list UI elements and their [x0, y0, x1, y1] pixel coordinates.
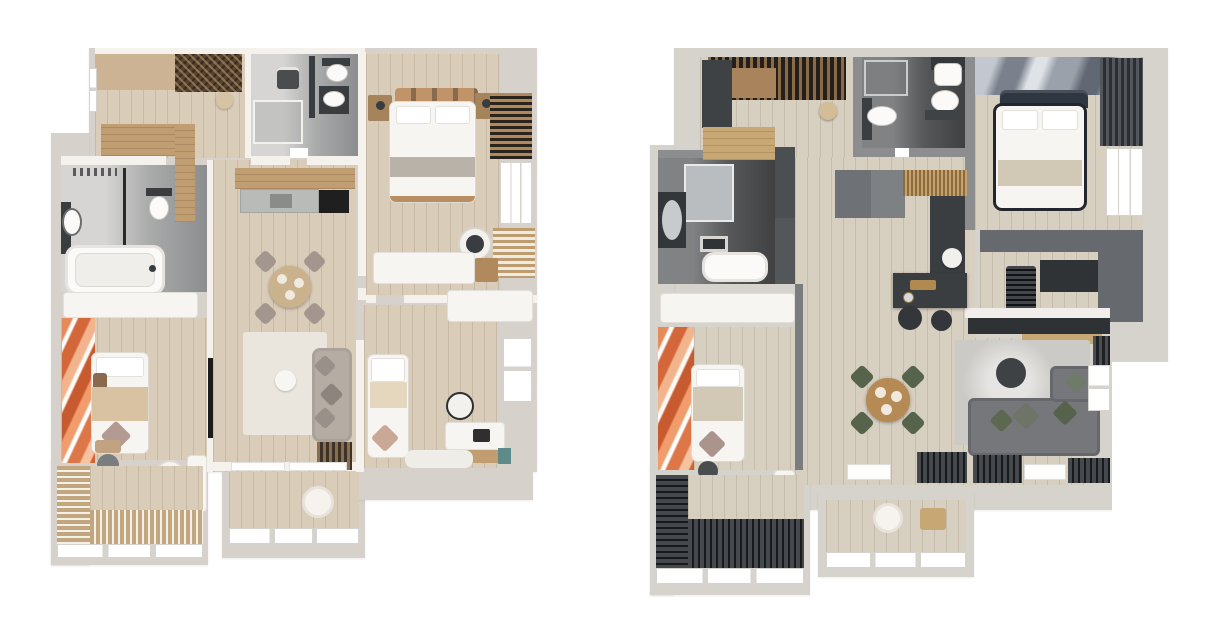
bar-stool-dark: [931, 310, 952, 331]
balcony-window-band: [656, 568, 804, 584]
kettle: [903, 292, 914, 303]
coffee-table: [996, 358, 1026, 388]
plate: [277, 274, 287, 284]
wall-face: [358, 288, 366, 300]
wall-face: [909, 148, 965, 157]
kitchen-cabinet: [775, 147, 795, 218]
door-leaf: [895, 148, 909, 157]
pillow: [1042, 110, 1078, 130]
slatted-deck: [90, 510, 203, 544]
wall-face: [853, 57, 862, 157]
wall-face: [245, 52, 251, 158]
sink: [62, 208, 82, 236]
toilet: [326, 64, 348, 82]
slatted-bench: [917, 452, 967, 483]
slatted-deck: [57, 466, 90, 544]
tv: [208, 358, 213, 438]
wall-face: [61, 156, 166, 165]
plate: [881, 404, 892, 415]
pillow: [371, 358, 405, 382]
toilet: [867, 106, 897, 126]
bathtub-basin: [75, 253, 155, 287]
paper-roll: [942, 248, 962, 268]
serving-tray: [910, 280, 936, 290]
wall-face: [307, 156, 358, 165]
toilet-tank: [146, 188, 172, 196]
door-leaf: [290, 148, 308, 158]
plate: [875, 387, 886, 398]
wall-face-light: [965, 308, 1110, 318]
wall-face: [366, 295, 376, 303]
wall-face: [251, 156, 290, 165]
slatted-bench: [1068, 458, 1110, 483]
balcony-door-threshold: [1024, 464, 1066, 480]
plate: [285, 290, 295, 300]
shower-glass: [253, 100, 303, 144]
balcony-door-threshold: [289, 462, 347, 471]
wardrobe: [660, 293, 795, 323]
window: [1088, 365, 1110, 411]
desk-chair-seat: [466, 235, 484, 253]
floor-plan-light: [45, 10, 545, 572]
bathtub: [702, 252, 768, 282]
kitchen-counter-vertical: [175, 124, 195, 222]
kitchen-counter: [101, 124, 177, 156]
wall-cutout: [1112, 362, 1170, 512]
balcony-floor: [688, 475, 804, 519]
wardrobe: [63, 292, 198, 318]
shower-glass: [684, 164, 734, 222]
balcony-door-threshold: [231, 462, 285, 471]
table-lamp: [376, 101, 385, 110]
dining-table: [269, 266, 311, 308]
island-sink: [270, 194, 292, 208]
round-chair: [873, 503, 903, 533]
balcony-door-threshold: [847, 464, 891, 480]
bed-blanket: [693, 387, 743, 421]
faucet: [149, 265, 156, 272]
bench-dresser: [373, 252, 475, 284]
side-table-wood: [920, 508, 946, 530]
wall-face: [862, 148, 895, 157]
side-table: [475, 258, 498, 282]
bed-runner: [390, 157, 475, 177]
tv-sideboard: [968, 318, 1110, 334]
wall-face: [965, 57, 975, 230]
pouf: [275, 370, 296, 391]
bed-frame: [390, 196, 475, 202]
artwork-orange: [658, 327, 694, 470]
pillow: [696, 369, 740, 387]
clothes-stack: [1006, 266, 1036, 312]
bed-blanket: [92, 387, 148, 421]
outer-wall: [355, 472, 533, 500]
balcony-floor: [90, 466, 203, 510]
shower-glass: [864, 60, 908, 96]
window: [503, 338, 532, 402]
round-chair: [302, 486, 334, 518]
slatted-deck-dark: [656, 475, 688, 568]
entry-wardrobe: [702, 60, 732, 128]
loggia-window-band: [826, 552, 966, 568]
wall-face: [358, 156, 366, 276]
desk-chair: [446, 392, 474, 420]
kitchen-tall-cabinet: [95, 54, 175, 90]
wardrobe-slats: [490, 93, 532, 159]
kitchen-island: [893, 273, 967, 308]
washing-machine: [277, 67, 299, 89]
bed-blanket: [998, 160, 1082, 186]
towel-rack: [73, 168, 117, 176]
sink: [934, 63, 962, 86]
curtains: [1100, 58, 1143, 146]
cooktop: [319, 190, 349, 213]
toilet: [931, 90, 959, 112]
framed-sink: [700, 236, 728, 252]
loggia-floor: [229, 472, 359, 530]
laptop: [473, 429, 490, 442]
toilet-shelf: [925, 110, 965, 120]
plate: [294, 278, 304, 288]
pillow: [435, 106, 470, 124]
kitchen-mat: [175, 54, 242, 92]
wall-face: [358, 52, 366, 156]
partition: [309, 56, 315, 118]
island-wood-top: [235, 168, 355, 189]
bed-blanket: [370, 382, 407, 408]
window: [89, 68, 97, 112]
floor-plans-canvas: [0, 0, 1216, 618]
plate: [891, 391, 902, 402]
sink: [323, 91, 345, 107]
window: [500, 162, 532, 224]
wall-face: [356, 340, 364, 472]
wardrobe: [447, 290, 533, 322]
kitchen-counter: [703, 127, 775, 160]
bar-stool-dark: [898, 306, 922, 330]
balcony-window-band: [57, 544, 203, 558]
small-rug: [405, 450, 473, 468]
bar-stool: [819, 102, 837, 120]
window: [1106, 148, 1143, 216]
books: [498, 448, 511, 464]
floor-plan-dark: [648, 40, 1174, 602]
bar-stool: [216, 92, 233, 109]
pillow: [1002, 110, 1038, 130]
counter-comb: [903, 170, 967, 196]
artwork-orange: [62, 318, 95, 463]
slatted-deck-dark: [688, 519, 804, 568]
pillow: [396, 106, 431, 124]
bed-throw: [95, 440, 121, 453]
loggia-window-band: [229, 528, 359, 544]
toilet: [149, 196, 169, 220]
corner-sofa: [968, 398, 1100, 456]
wall-face: [795, 284, 803, 470]
slatted-bench: [973, 455, 1022, 483]
radiator-slats: [493, 228, 535, 278]
kitchen-cabinets: [835, 170, 905, 218]
vanity-mirror: [662, 200, 682, 240]
closet-dresser: [1040, 260, 1098, 292]
dining-table: [866, 378, 910, 422]
